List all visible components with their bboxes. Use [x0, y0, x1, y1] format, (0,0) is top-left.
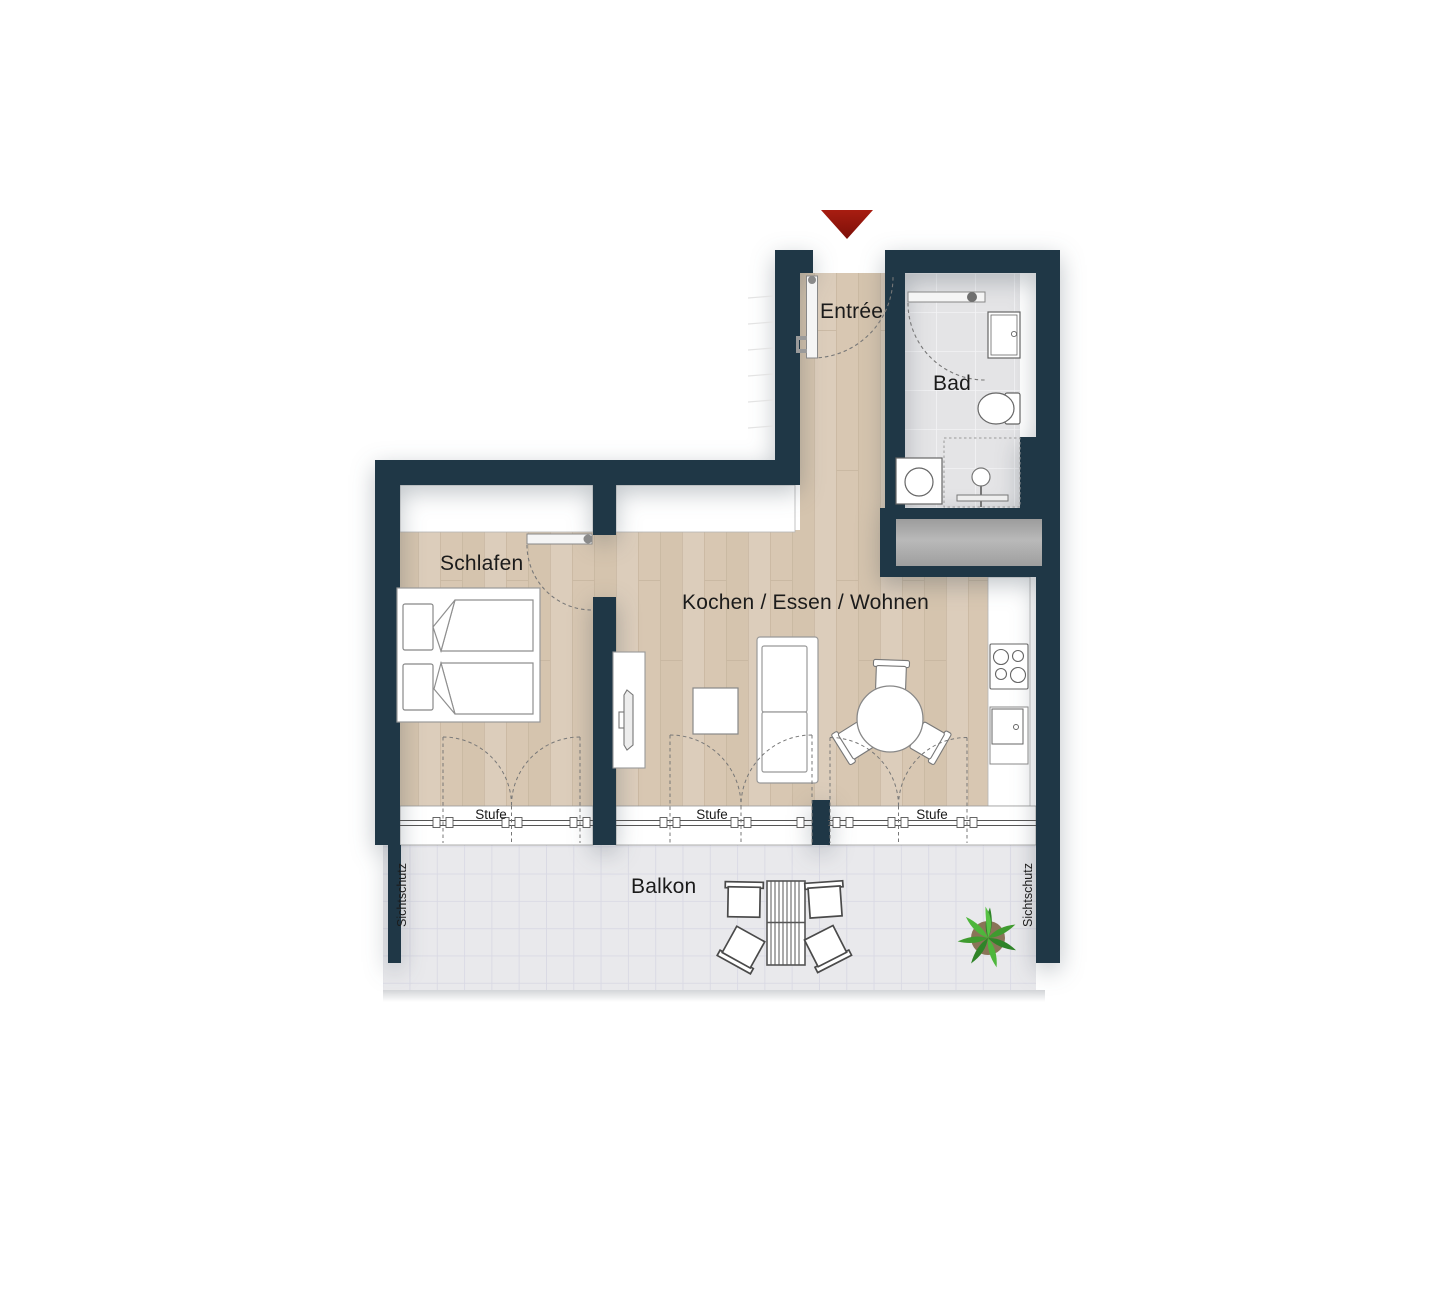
bad-niche: [1020, 275, 1038, 437]
outside-stair-marks: [748, 296, 773, 428]
cooktop: [990, 644, 1028, 689]
sofa: [757, 637, 818, 783]
toilet: [978, 393, 1020, 424]
entrance-arrow-icon: [821, 210, 873, 239]
doorway-wood-patch: [593, 535, 616, 597]
pillow: [403, 664, 433, 710]
schlafen-door-hinge: [584, 535, 593, 544]
pillow: [403, 604, 433, 650]
balcony-chair: [805, 881, 845, 919]
bath-sink: [988, 312, 1020, 358]
shaft-inset: [896, 519, 1042, 566]
room-label-balkon: Balkon: [631, 875, 696, 899]
step-label: Stufe: [902, 807, 962, 822]
room-label-wohnen: Kochen / Essen / Wohnen: [682, 591, 929, 615]
balcony-table: [767, 881, 805, 965]
schlafen-wardrobe-strip: [400, 485, 593, 532]
entrance-door-hinge: [808, 276, 816, 284]
step-label: Stufe: [682, 807, 742, 822]
room-label-entree: Entrée: [820, 300, 883, 324]
round-dining-table: [857, 686, 923, 752]
balcony-edge-shadow: [383, 990, 1045, 1002]
bad-door-hinge: [967, 292, 977, 302]
living-wardrobe-strip: [616, 485, 795, 532]
tv-screen: [624, 690, 633, 750]
privacy-screen-label: Sichtschutz: [395, 850, 409, 940]
step-label: Stufe: [461, 807, 521, 822]
entrance-door-leaf: [807, 276, 818, 358]
schlafen-door-leaf: [527, 534, 592, 544]
coffee-table: [693, 688, 738, 734]
washing-machine: [896, 458, 942, 504]
balcony-chair: [725, 882, 764, 918]
tv-sideboard: [613, 652, 645, 768]
blanket-bottom: [441, 663, 533, 714]
room-label-bad: Bad: [933, 372, 971, 396]
double-bed: [397, 588, 540, 722]
balcony-tile-floor: [383, 845, 1036, 990]
floor-plan-canvas: Entrée Bad Schlafen Kochen / Essen / Woh…: [0, 0, 1440, 1305]
room-label-schlafen: Schlafen: [440, 552, 523, 576]
blanket-top: [441, 600, 533, 651]
privacy-screen-label: Sichtschutz: [1021, 850, 1035, 940]
kitchen-sink-cabinet: [990, 707, 1028, 764]
floor-plan-drawing: [0, 0, 1440, 1305]
kitchen-counter: [988, 577, 1030, 806]
